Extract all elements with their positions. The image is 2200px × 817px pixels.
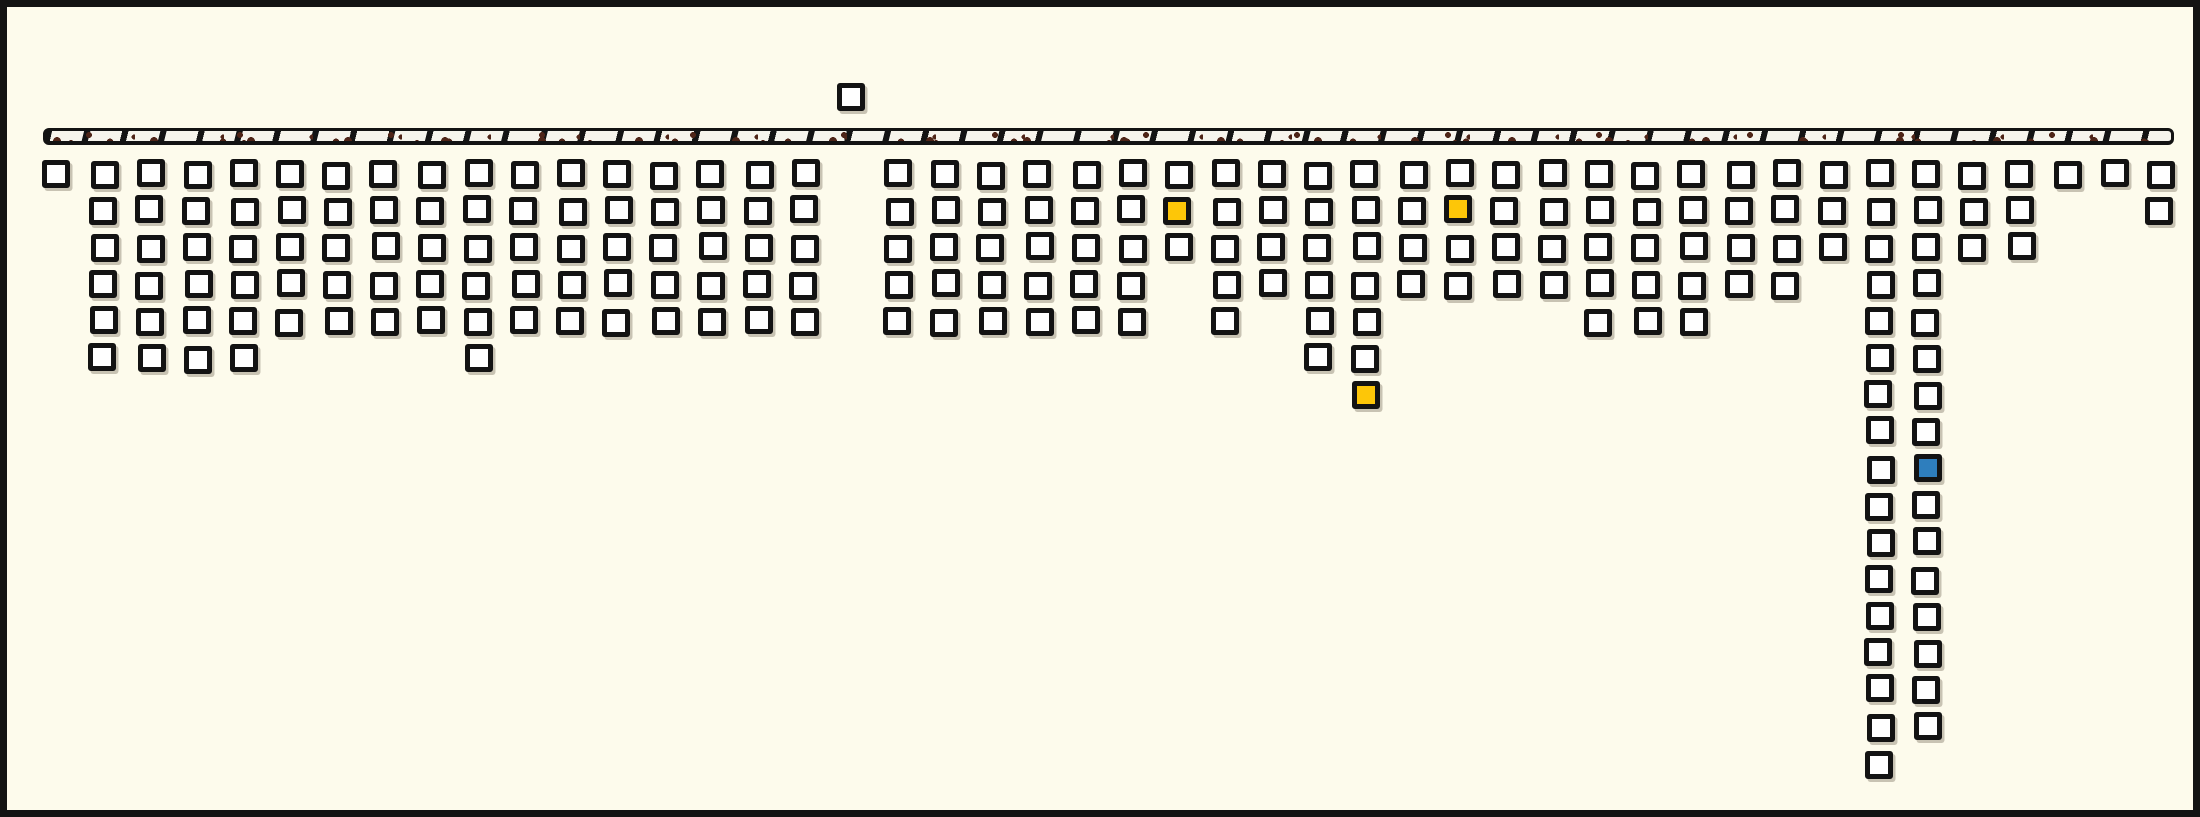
unit-square	[418, 161, 446, 189]
unit-square	[557, 159, 585, 187]
unit-square	[42, 160, 70, 188]
unit-square	[1865, 493, 1893, 521]
unit-square	[745, 234, 773, 262]
unit-square	[416, 270, 444, 298]
unit-square	[1773, 235, 1801, 263]
unit-square	[1632, 271, 1660, 299]
unit-square	[1633, 198, 1661, 226]
unit-square	[1397, 270, 1425, 298]
unit-square	[883, 307, 911, 335]
unit-square	[976, 234, 1004, 262]
unit-square	[416, 197, 444, 225]
unit-square	[2008, 232, 2036, 260]
unit-square	[464, 308, 492, 336]
unit-square	[1631, 234, 1659, 262]
highlight-square-yellow	[1444, 195, 1472, 223]
unit-square	[1492, 233, 1520, 261]
unit-square	[1306, 307, 1334, 335]
unit-square	[462, 272, 490, 300]
unit-square	[930, 233, 958, 261]
unit-square	[2145, 197, 2173, 225]
unit-square	[978, 198, 1006, 226]
unit-square	[1072, 234, 1100, 262]
unit-square	[977, 162, 1005, 190]
unit-square	[1584, 233, 1612, 261]
unit-square	[1911, 309, 1939, 337]
unit-square	[1631, 162, 1659, 190]
unit-square	[1303, 234, 1331, 262]
unit-square	[276, 233, 304, 261]
unit-square	[1259, 196, 1287, 224]
unit-square	[1867, 198, 1895, 226]
unit-square	[137, 159, 165, 187]
unit-square	[651, 198, 679, 226]
unit-square	[885, 271, 913, 299]
unit-square	[1771, 195, 1799, 223]
unit-square	[1540, 271, 1568, 299]
unit-square	[1305, 271, 1333, 299]
unit-square	[1914, 640, 1942, 668]
unit-square	[1912, 418, 1940, 446]
unit-square	[1773, 159, 1801, 187]
unit-square	[370, 196, 398, 224]
unit-square	[1867, 529, 1895, 557]
unit-square	[1914, 382, 1942, 410]
unit-square	[323, 271, 351, 299]
unit-square	[1725, 197, 1753, 225]
unit-square	[372, 232, 400, 260]
unit-square	[1867, 714, 1895, 742]
unit-square	[699, 232, 727, 260]
unit-square	[276, 160, 304, 188]
unit-square	[1213, 198, 1241, 226]
unit-square	[371, 308, 399, 336]
unit-square	[1026, 232, 1054, 260]
unit-square	[1540, 198, 1568, 226]
unit-square	[229, 307, 257, 335]
unit-square	[791, 308, 819, 336]
unit-square	[556, 307, 584, 335]
unit-square	[1727, 234, 1755, 262]
unit-square	[1912, 491, 1940, 519]
unit-square	[1493, 270, 1521, 298]
unit-square	[650, 162, 678, 190]
unit-square	[1867, 456, 1895, 484]
unit-square	[185, 270, 213, 298]
unit-square	[182, 197, 210, 225]
unit-square	[1865, 235, 1893, 263]
unit-square	[1866, 159, 1894, 187]
unit-square	[369, 160, 397, 188]
unit-square	[930, 309, 958, 337]
unit-square	[1538, 235, 1566, 263]
unit-square	[1912, 233, 1940, 261]
unit-square	[1446, 235, 1474, 263]
unit-square	[1026, 308, 1054, 336]
unit-square	[884, 235, 912, 263]
unit-square	[135, 272, 163, 300]
unit-square	[1958, 234, 1986, 262]
unit-square	[1398, 197, 1426, 225]
unit-square	[1351, 345, 1379, 373]
unit-square	[698, 308, 726, 336]
unit-square	[978, 271, 1006, 299]
unit-square	[1771, 272, 1799, 300]
unit-square	[1913, 527, 1941, 555]
unit-square	[697, 272, 725, 300]
unit-square	[931, 160, 959, 188]
unit-square	[91, 234, 119, 262]
unit-square	[1958, 162, 1986, 190]
unit-square	[1024, 272, 1052, 300]
unit-square	[604, 269, 632, 297]
unit-square	[278, 196, 306, 224]
unit-square	[1259, 269, 1287, 297]
unit-square	[1353, 308, 1381, 336]
unit-square	[1304, 343, 1332, 371]
unit-square	[511, 161, 539, 189]
chart-canvas	[0, 0, 2200, 817]
unit-square	[1399, 234, 1427, 262]
unit-square	[1865, 751, 1893, 779]
unit-square	[1912, 676, 1940, 704]
unit-square	[465, 159, 493, 187]
unit-square	[1350, 160, 1378, 188]
unit-square	[652, 307, 680, 335]
unit-square	[229, 235, 257, 263]
unit-square	[886, 198, 914, 226]
unit-square	[1680, 232, 1708, 260]
unit-square	[696, 160, 724, 188]
unit-square	[1819, 233, 1847, 261]
unit-square	[1914, 712, 1942, 740]
unit-square	[1446, 159, 1474, 187]
unit-square	[90, 306, 118, 334]
unit-square	[559, 198, 587, 226]
unit-square	[1913, 345, 1941, 373]
unit-square	[184, 161, 212, 189]
unit-square	[1679, 196, 1707, 224]
floating-square	[837, 83, 865, 111]
unit-square	[791, 235, 819, 263]
unit-square	[1725, 270, 1753, 298]
unit-square	[1818, 197, 1846, 225]
unit-square	[1866, 416, 1894, 444]
unit-square	[322, 234, 350, 262]
unit-square	[417, 306, 445, 334]
unit-square	[1165, 233, 1193, 261]
unit-square	[979, 307, 1007, 335]
unit-square	[557, 235, 585, 263]
unit-square	[1865, 565, 1893, 593]
unit-square	[1117, 195, 1145, 223]
unit-square	[89, 270, 117, 298]
unit-square	[136, 308, 164, 336]
unit-square	[1119, 159, 1147, 187]
unit-square	[1677, 160, 1705, 188]
unit-square	[746, 161, 774, 189]
unit-square	[2147, 161, 2175, 189]
unit-square	[603, 160, 631, 188]
unit-square	[1213, 271, 1241, 299]
unit-square	[1492, 161, 1520, 189]
unit-square	[231, 271, 259, 299]
unit-square	[184, 346, 212, 374]
unit-square	[1023, 160, 1051, 188]
unit-square	[1490, 197, 1518, 225]
unit-square	[464, 235, 492, 263]
unit-square	[1353, 232, 1381, 260]
unit-square	[418, 234, 446, 262]
unit-square	[1911, 567, 1939, 595]
unit-square	[1913, 269, 1941, 297]
unit-square	[324, 198, 352, 226]
unit-square	[792, 159, 820, 187]
ground-bar	[43, 128, 2174, 145]
unit-square	[1025, 196, 1053, 224]
unit-square	[1257, 233, 1285, 261]
unit-square	[1400, 161, 1428, 189]
unit-square	[1913, 603, 1941, 631]
unit-square	[1914, 196, 1942, 224]
unit-square	[463, 195, 491, 223]
highlight-square-yellow	[1352, 381, 1380, 409]
unit-square	[743, 270, 771, 298]
unit-square	[1912, 160, 1940, 188]
unit-square	[370, 272, 398, 300]
unit-square	[651, 271, 679, 299]
unit-square	[697, 196, 725, 224]
unit-square	[1073, 161, 1101, 189]
unit-square	[89, 197, 117, 225]
unit-square	[1866, 344, 1894, 372]
unit-square	[275, 309, 303, 337]
unit-square	[1586, 269, 1614, 297]
unit-square	[1539, 159, 1567, 187]
unit-square	[1444, 272, 1472, 300]
unit-square	[649, 234, 677, 262]
unit-square	[1258, 160, 1286, 188]
unit-square	[1305, 198, 1333, 226]
unit-square	[932, 269, 960, 297]
unit-square	[1867, 271, 1895, 299]
unit-square	[1304, 162, 1332, 190]
highlight-square-yellow	[1163, 197, 1191, 225]
unit-square	[137, 235, 165, 263]
unit-square	[465, 344, 493, 372]
unit-square	[183, 233, 211, 261]
unit-square	[231, 198, 259, 226]
unit-square	[138, 344, 166, 372]
unit-square	[510, 233, 538, 261]
unit-square	[88, 343, 116, 371]
unit-square	[1864, 380, 1892, 408]
unit-square	[1678, 272, 1706, 300]
unit-square	[135, 195, 163, 223]
unit-square	[1864, 638, 1892, 666]
unit-square	[1117, 272, 1145, 300]
unit-square	[1165, 161, 1193, 189]
unit-square	[322, 162, 350, 190]
unit-square	[1586, 196, 1614, 224]
unit-square	[510, 306, 538, 334]
unit-square	[789, 272, 817, 300]
unit-square	[1727, 161, 1755, 189]
unit-square	[1118, 308, 1146, 336]
unit-square	[509, 197, 537, 225]
unit-square	[790, 195, 818, 223]
unit-square	[1585, 160, 1613, 188]
unit-square	[1634, 307, 1662, 335]
unit-square	[230, 159, 258, 187]
unit-square	[745, 306, 773, 334]
unit-square	[2006, 196, 2034, 224]
unit-square	[2005, 160, 2033, 188]
unit-square	[1866, 674, 1894, 702]
unit-square	[1820, 161, 1848, 189]
unit-square	[932, 196, 960, 224]
unit-square	[2054, 161, 2082, 189]
unit-square	[1211, 235, 1239, 263]
unit-square	[744, 197, 772, 225]
unit-square	[183, 306, 211, 334]
unit-square	[1071, 197, 1099, 225]
unit-square	[1072, 306, 1100, 334]
unit-square	[603, 233, 631, 261]
unit-square	[512, 270, 540, 298]
unit-square	[605, 196, 633, 224]
unit-square	[1212, 159, 1240, 187]
unit-square	[277, 269, 305, 297]
unit-square	[1352, 196, 1380, 224]
unit-square	[91, 161, 119, 189]
unit-square	[1960, 198, 1988, 226]
unit-square	[1211, 307, 1239, 335]
unit-square	[1584, 309, 1612, 337]
unit-square	[1866, 602, 1894, 630]
unit-square	[602, 309, 630, 337]
unit-square	[1680, 308, 1708, 336]
unit-square	[558, 271, 586, 299]
unit-square	[1070, 270, 1098, 298]
unit-square	[2101, 159, 2129, 187]
unit-square	[1351, 272, 1379, 300]
highlight-square-blue	[1914, 454, 1942, 482]
unit-square	[1119, 235, 1147, 263]
unit-square	[884, 159, 912, 187]
unit-square	[230, 344, 258, 372]
unit-square	[325, 307, 353, 335]
unit-square	[1865, 307, 1893, 335]
